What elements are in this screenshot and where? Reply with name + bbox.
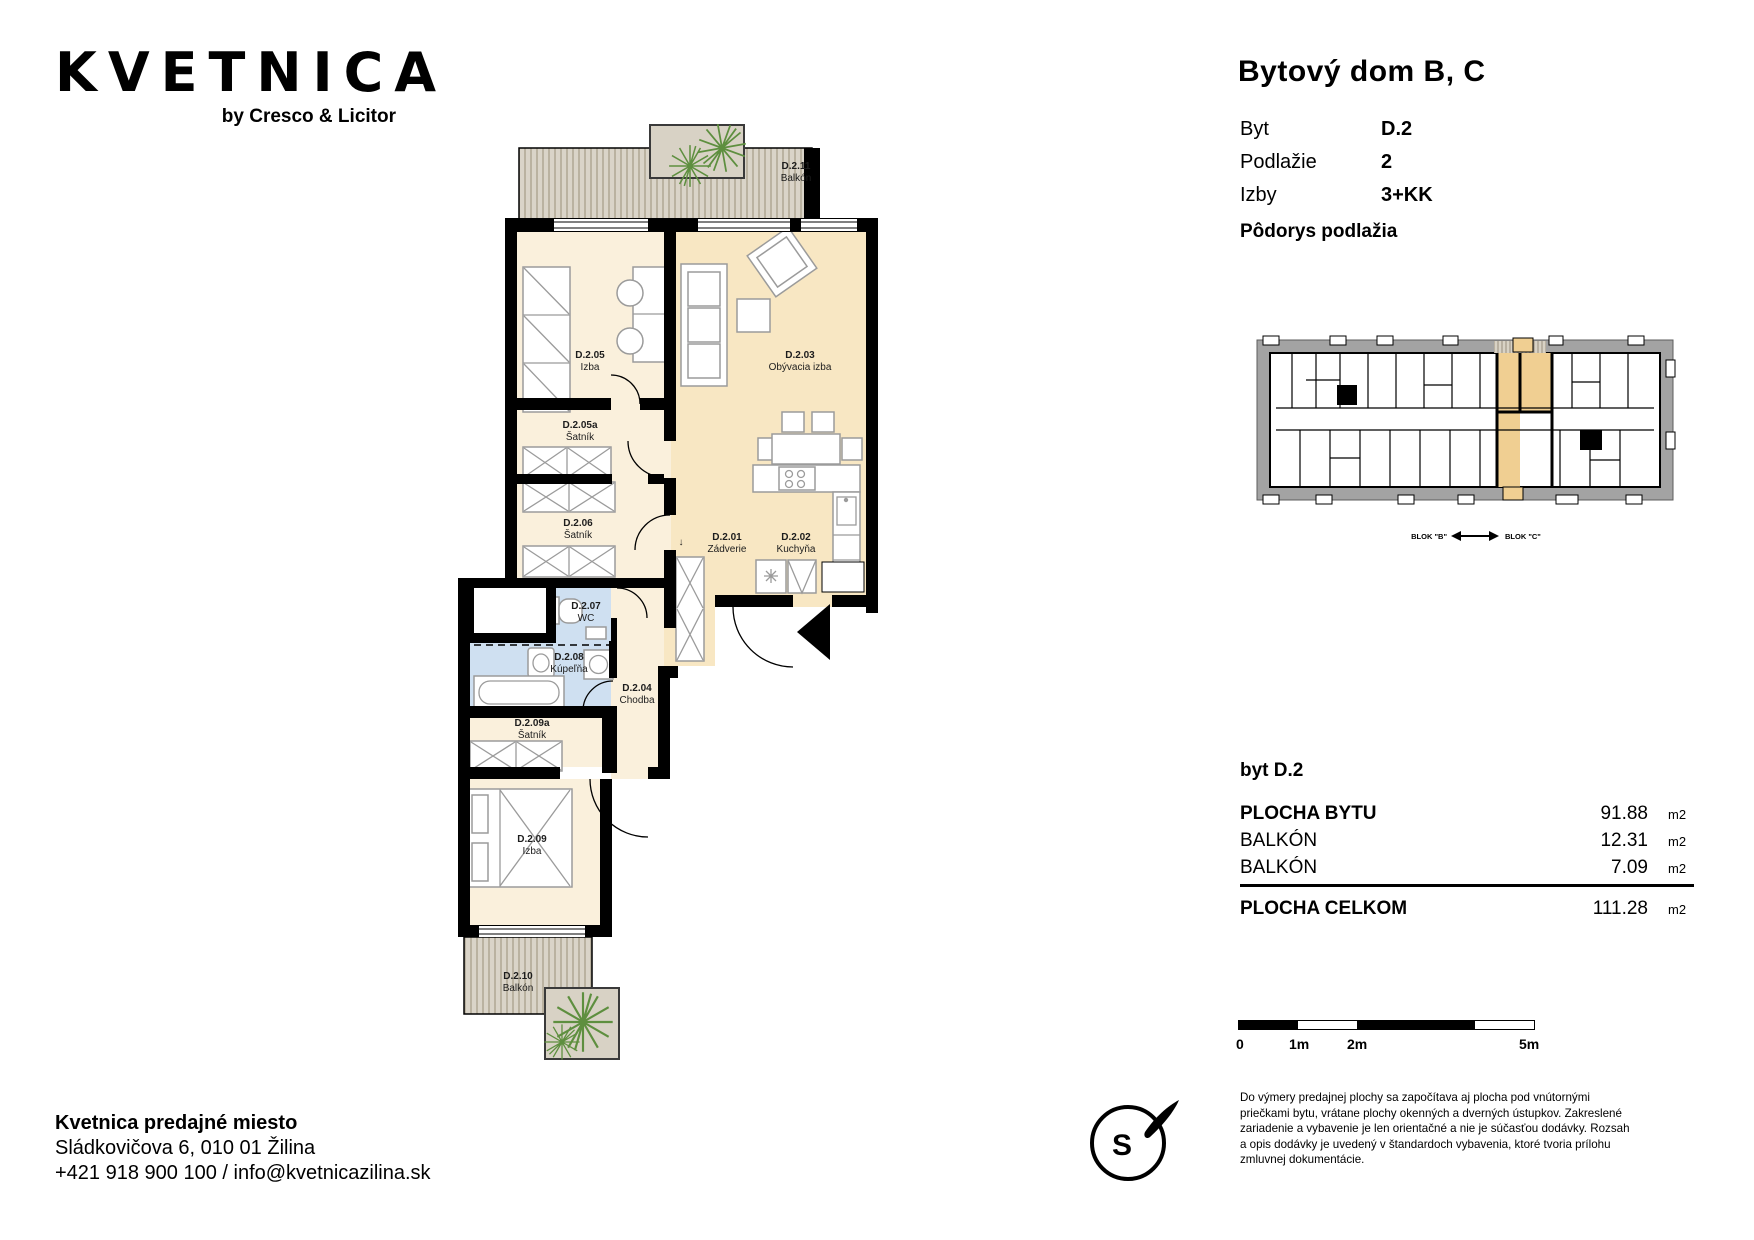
room-label: Kuchyňa bbox=[777, 544, 816, 555]
room-label: Obývacia izba bbox=[769, 362, 832, 373]
info-label-byt: Byt bbox=[1240, 118, 1269, 141]
room-label: Izba bbox=[523, 846, 542, 857]
scale-label-2m: 2m bbox=[1347, 1036, 1367, 1052]
blok-c-label: BLOK "C" bbox=[1505, 532, 1541, 541]
scale-label-1m: 1m bbox=[1289, 1036, 1309, 1052]
area-row-value: 7.09 bbox=[1520, 857, 1648, 879]
down-arrow-icon: ↓ bbox=[679, 537, 684, 548]
room-label: Balkón bbox=[781, 173, 812, 184]
info-value-podlazie: 2 bbox=[1381, 151, 1392, 174]
blok-arrow-icon bbox=[1451, 531, 1499, 541]
area-row-label: BALKÓN bbox=[1240, 830, 1317, 852]
room-label: Kúpeľňa bbox=[550, 664, 588, 675]
area-row-label: PLOCHA BYTU bbox=[1240, 803, 1377, 825]
room-label: D.2.07 bbox=[571, 601, 601, 612]
info-value-byt: D.2 bbox=[1381, 118, 1412, 141]
room-label: WC bbox=[578, 613, 595, 624]
floorplan-sheet: KVETNICA by Cresco & Licitor Bytový dom … bbox=[0, 0, 1754, 1240]
room-label: D.2.03 bbox=[785, 350, 815, 361]
room-label: Šatník bbox=[518, 728, 547, 741]
scale-label-5m: 5m bbox=[1519, 1036, 1539, 1052]
info-value-izby: 3+KK bbox=[1381, 184, 1433, 207]
overview-outline bbox=[1257, 340, 1673, 500]
page-title: Bytový dom B, C bbox=[1238, 55, 1486, 89]
room-label: D.2.11 bbox=[782, 161, 811, 172]
apartment-floor-plan: ↓ D.2.01 Zádverie D.2.02 Kuchyňa D.2.03 … bbox=[440, 90, 900, 1080]
room-label: D.2.06 bbox=[563, 518, 593, 529]
shaft bbox=[474, 588, 546, 633]
room-label: Zádverie bbox=[708, 544, 747, 555]
blok-b-label: BLOK "B" bbox=[1411, 532, 1447, 541]
room-label: D.2.01 bbox=[712, 532, 742, 543]
room-label: Chodba bbox=[619, 695, 654, 706]
room-label: D.2.09 bbox=[517, 834, 547, 845]
area-total-unit: m2 bbox=[1668, 902, 1686, 917]
area-total-value: 111.28 bbox=[1520, 898, 1648, 920]
area-row-value: 91.88 bbox=[1520, 803, 1648, 825]
scale-label-0: 0 bbox=[1236, 1036, 1244, 1052]
room-label: Šatník bbox=[566, 430, 595, 443]
room-label: D.2.02 bbox=[781, 532, 811, 543]
floorplan-heading: Pôdorys podlažia bbox=[1240, 221, 1397, 243]
room-label: D.2.08 bbox=[554, 652, 584, 663]
room-fill-chodba bbox=[611, 583, 664, 779]
room-label: D.2.04 bbox=[622, 683, 652, 694]
planter-bottom bbox=[538, 988, 619, 1066]
room-label: Balkón bbox=[503, 983, 534, 994]
area-row-value: 12.31 bbox=[1520, 830, 1648, 852]
table-divider bbox=[1240, 884, 1694, 887]
area-total-label: PLOCHA CELKOM bbox=[1240, 898, 1407, 920]
footer-contact: +421 918 900 100 / info@kvetnicazilina.s… bbox=[55, 1162, 431, 1185]
scale-bar bbox=[1238, 1020, 1535, 1030]
footer-name: Kvetnica predajné miesto bbox=[55, 1112, 297, 1135]
building-overview-plan: BLOK "B" BLOK "C" bbox=[1255, 330, 1677, 548]
room-label: D.2.09a bbox=[514, 718, 549, 729]
room-label: D.2.05a bbox=[562, 420, 597, 431]
compass-letter: S bbox=[1112, 1129, 1132, 1162]
info-label-podlazie: Podlažie bbox=[1240, 151, 1317, 174]
room-label: Šatník bbox=[564, 528, 593, 541]
area-row-label: BALKÓN bbox=[1240, 857, 1317, 879]
room-label: Izba bbox=[581, 362, 600, 373]
disclaimer-text: Do výmery predajnej plochy sa započítava… bbox=[1240, 1090, 1630, 1168]
area-row-unit: m2 bbox=[1668, 807, 1686, 822]
entrance-arrow-icon bbox=[797, 604, 830, 660]
planter-top bbox=[650, 117, 753, 187]
info-label-izby: Izby bbox=[1240, 184, 1277, 207]
room-label: D.2.05 bbox=[575, 350, 605, 361]
logo-byline: by Cresco & Licitor bbox=[56, 106, 396, 128]
footer-address: Sládkovičova 6, 010 01 Žilina bbox=[55, 1137, 315, 1160]
apartment-areas-heading: byt D.2 bbox=[1240, 760, 1303, 782]
room-label: D.2.10 bbox=[503, 971, 533, 982]
area-row-unit: m2 bbox=[1668, 861, 1686, 876]
compass-icon: S bbox=[1085, 1098, 1185, 1193]
area-row-unit: m2 bbox=[1668, 834, 1686, 849]
kvetnica-logo: KVETNICA bbox=[55, 46, 447, 100]
